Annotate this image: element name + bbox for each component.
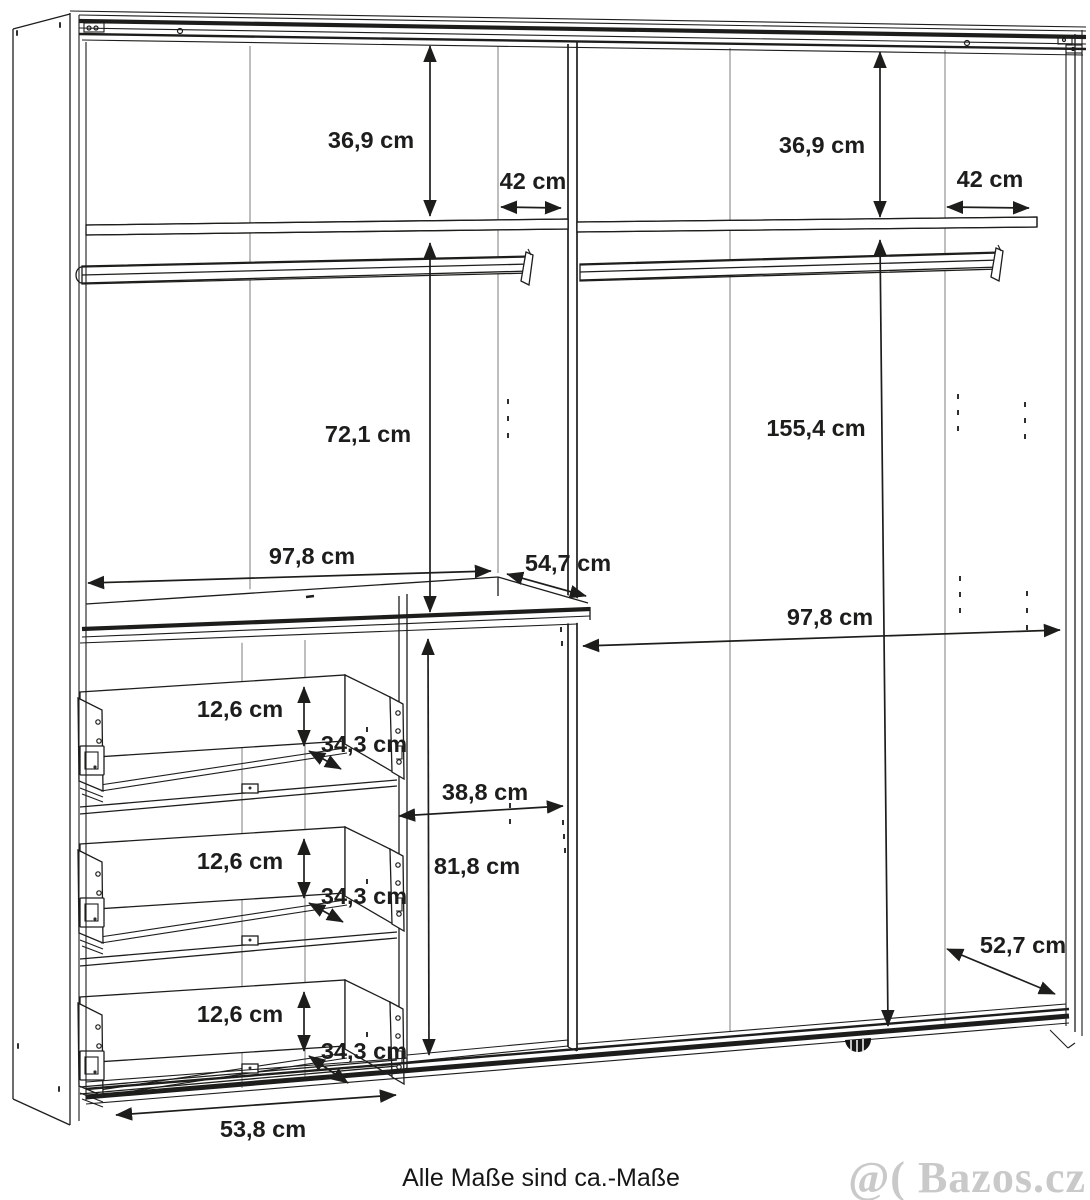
shelf-pin-holes — [366, 394, 1028, 1037]
wardrobe-dimension-diagram: 36,9 cm 42 cm 36,9 cm 42 cm 72,1 cm 155,… — [0, 0, 1090, 1200]
clothes-rail-left — [76, 249, 533, 285]
top-shelf-right — [577, 217, 1037, 232]
arrow-right-top-bay-width — [947, 207, 1029, 208]
right-side-panel — [1050, 30, 1082, 1048]
top-door-rail — [70, 11, 1086, 55]
top-shelf-left — [86, 219, 568, 235]
label-left-section-width: 97,8 cm — [269, 543, 355, 569]
middle-shelf — [80, 573, 592, 652]
arrow-niche-height — [428, 639, 429, 1055]
label-right-top-bay-width: 42 cm — [957, 166, 1024, 192]
arrow-niche-width — [399, 806, 563, 816]
drawer-unit-right-wall — [399, 594, 568, 1072]
label-right-hanging-height: 155,4 cm — [766, 415, 865, 441]
bazos-watermark: @( Bazos.cz — [848, 1153, 1086, 1200]
arrow-right-section-width — [583, 630, 1060, 646]
left-side-panel — [13, 13, 86, 1125]
label-bottom-depth: 52,7 cm — [980, 932, 1066, 958]
label-shelf-depth: 54,7 cm — [525, 550, 611, 576]
diagram-canvas: 36,9 cm 42 cm 36,9 cm 42 cm 72,1 cm 155,… — [0, 0, 1090, 1200]
dimension-arrows — [88, 46, 1060, 1115]
drawer-shelf-1 — [80, 780, 397, 814]
label-left-hanging-height: 72,1 cm — [325, 421, 411, 447]
label-niche-width: 38,8 cm — [442, 779, 528, 805]
label-left-top-bay-width: 42 cm — [500, 168, 567, 194]
label-niche-height: 81,8 cm — [434, 853, 520, 879]
label-drawer3-height: 12,6 cm — [197, 1001, 283, 1027]
drawer-shelf-2 — [80, 932, 397, 966]
center-partition — [568, 42, 577, 1051]
label-right-section-width: 97,8 cm — [787, 604, 873, 630]
arrow-right-hanging-height — [880, 240, 888, 1026]
label-drawer-front-width: 53,8 cm — [220, 1116, 306, 1142]
label-drawer3-depth: 34,3 cm — [321, 1038, 407, 1064]
label-drawer1-depth: 34,3 cm — [321, 731, 407, 757]
label-right-top-shelf-height: 36,9 cm — [779, 132, 865, 158]
measurements-note: Alle Maße sind ca.-Maße — [402, 1164, 680, 1192]
label-drawer2-height: 12,6 cm — [197, 848, 283, 874]
label-left-top-shelf-height: 36,9 cm — [328, 127, 414, 153]
clothes-rail-right — [580, 245, 1003, 281]
label-drawer1-height: 12,6 cm — [197, 696, 283, 722]
arrow-left-top-bay-width — [501, 207, 561, 208]
label-drawer2-depth: 34,3 cm — [321, 883, 407, 909]
